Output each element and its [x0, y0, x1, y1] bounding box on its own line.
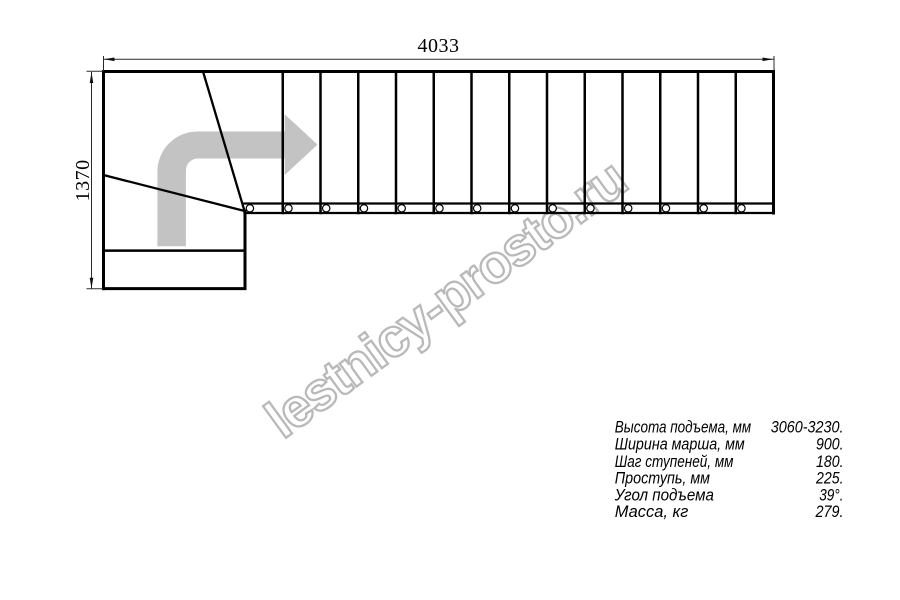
svg-text:4033: 4033: [418, 35, 460, 57]
svg-text:Ширина марша, мм: Ширина марша, мм: [615, 436, 745, 454]
svg-text:279.: 279.: [815, 503, 844, 521]
svg-text:39°.: 39°.: [819, 486, 843, 505]
svg-text:3060-3230.: 3060-3230.: [771, 418, 844, 436]
svg-text:Высота подъема, мм: Высота подъема, мм: [615, 418, 752, 437]
svg-text:1370: 1370: [72, 159, 94, 201]
svg-text:Масса, кг: Масса, кг: [615, 502, 688, 521]
svg-text:900.: 900.: [816, 435, 843, 453]
